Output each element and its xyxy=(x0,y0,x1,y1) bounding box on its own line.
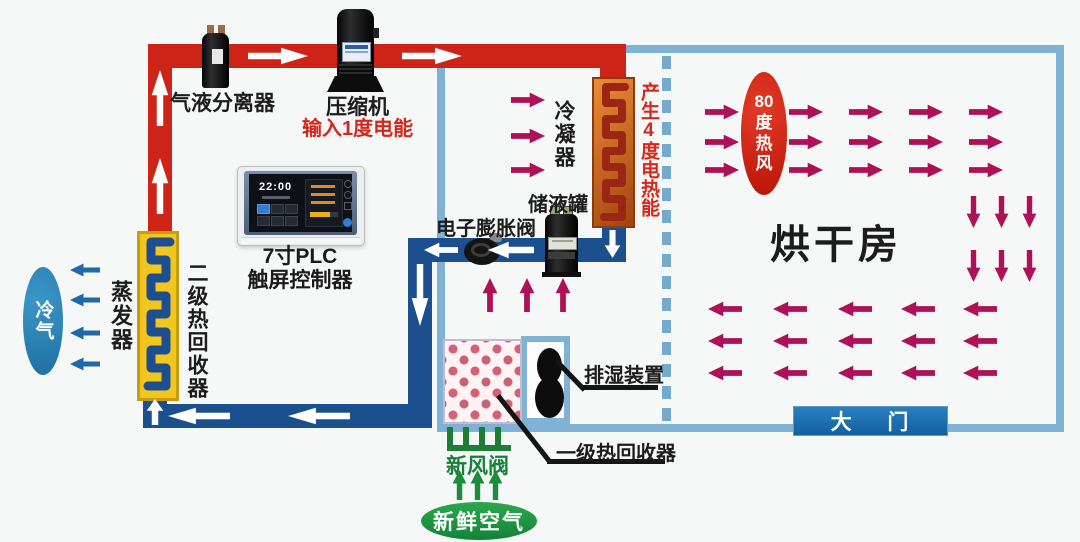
air-flow-arrow-left-icon xyxy=(963,301,997,317)
cold-air-badge: 冷气 xyxy=(23,267,63,375)
plc-screen-button[interactable] xyxy=(285,216,298,226)
plc-side-icon[interactable] xyxy=(344,191,352,199)
door-label: 大 门 xyxy=(831,406,911,436)
plc-screen-button[interactable] xyxy=(271,216,284,226)
air-flow-arrow-left-icon xyxy=(963,333,997,349)
plc-side-icon[interactable] xyxy=(344,180,352,188)
heat-recovery1-label: 一级热回收器 xyxy=(556,437,676,466)
dehumidifier-fan xyxy=(533,346,565,420)
plc-readout-panel xyxy=(305,179,343,227)
air-flow-arrow-right-icon xyxy=(789,104,823,120)
air-flow-arrow-right-icon xyxy=(909,104,943,120)
air-flow-arrow-left-icon xyxy=(901,333,935,349)
air-flow-arrow-left-icon xyxy=(838,333,872,349)
air-flow-arrow-left-icon xyxy=(838,365,872,381)
cold-air-arrow-left-icon xyxy=(70,293,100,307)
gas-liquid-separator xyxy=(200,24,234,90)
plc-screen[interactable]: 22:00 xyxy=(249,174,352,232)
tank-label: 储液罐 xyxy=(528,188,588,217)
hot-air-label: 80度热风 xyxy=(752,92,776,175)
air-flow-arrow-down-icon xyxy=(966,250,981,282)
compressor-power-note: 输入1度电能 xyxy=(302,112,413,141)
air-flow-arrow-left-icon xyxy=(901,301,935,317)
plc-screen-button[interactable] xyxy=(271,204,284,214)
air-flow-arrow-down-icon xyxy=(1022,196,1037,228)
plc-screen-button[interactable] xyxy=(257,216,270,226)
plc-screen-button[interactable] xyxy=(285,204,298,214)
plc-power-button[interactable] xyxy=(343,218,352,227)
door[interactable]: 大 门 xyxy=(793,406,948,436)
evaporator-label: 蒸发器 xyxy=(104,280,136,352)
coil-serpentine-icon xyxy=(140,234,176,398)
air-flow-arrow-right-icon xyxy=(789,162,823,178)
air-flow-arrow-up-icon xyxy=(482,278,498,312)
air-flow-arrow-down-icon xyxy=(966,196,981,228)
air-flow-arrow-right-icon xyxy=(909,162,943,178)
heat-pump-dryer-diagram: 22:00 xyxy=(0,0,1080,542)
air-flow-arrow-right-icon xyxy=(511,162,545,178)
fresh-air-valve xyxy=(447,427,511,451)
air-flow-arrow-left-icon xyxy=(838,301,872,317)
air-flow-arrow-right-icon xyxy=(969,162,1003,178)
air-flow-arrow-right-icon xyxy=(909,134,943,150)
air-flow-arrow-left-icon xyxy=(708,365,742,381)
air-flow-arrow-right-icon xyxy=(849,134,883,150)
compressor-port-icon xyxy=(373,28,379,38)
air-flow-arrow-left-icon xyxy=(708,301,742,317)
dehumidifier-label: 排湿装置 xyxy=(584,359,664,388)
air-flow-arrow-right-icon xyxy=(705,134,739,150)
air-flow-arrow-up-icon xyxy=(555,278,571,312)
air-flow-arrow-down-icon xyxy=(1022,250,1037,282)
condenser-heat-note: 产生4度电热能 xyxy=(635,82,662,217)
plc-side-icon[interactable] xyxy=(344,202,352,210)
compressor xyxy=(325,8,385,94)
plc-clock: 22:00 xyxy=(259,181,292,193)
air-flow-arrow-right-icon xyxy=(511,128,545,144)
heat-recovery2-label: 二级热回收器 xyxy=(181,262,211,400)
air-flow-arrow-left-icon xyxy=(708,333,742,349)
plc-screen-button[interactable] xyxy=(257,204,270,214)
separator-label-patch xyxy=(212,49,223,64)
tank-band xyxy=(548,237,577,250)
hot-air-badge: 80度热风 xyxy=(741,72,787,195)
drying-room-border-bottom xyxy=(437,424,1064,432)
air-flow-arrow-up-icon xyxy=(519,278,535,312)
condenser-label: 冷凝器 xyxy=(548,100,578,169)
air-flow-arrow-left-icon xyxy=(773,365,807,381)
cold-air-arrow-left-icon xyxy=(70,263,100,277)
compressor-label-sticker xyxy=(342,42,371,62)
air-flow-arrow-left-icon xyxy=(963,365,997,381)
air-flow-arrow-down-icon xyxy=(994,250,1009,282)
air-flow-arrow-right-icon xyxy=(789,134,823,150)
secondary-heat-recovery-coil xyxy=(137,231,179,401)
plc-label: 7寸PLC 触屏控制器 xyxy=(225,245,375,293)
cold-air-label: 冷气 xyxy=(30,300,57,342)
cold-air-arrow-left-icon xyxy=(70,326,100,340)
separator-label: 气液分离器 xyxy=(170,87,275,117)
plc-label-line2: 触屏控制器 xyxy=(225,269,375,293)
fresh-air-label: 新鲜空气 xyxy=(433,506,525,536)
plc-controller: 22:00 xyxy=(237,166,365,246)
plc-chin xyxy=(241,237,360,244)
air-flow-arrow-left-icon xyxy=(773,301,807,317)
fresh-air-badge: 新鲜空气 xyxy=(421,502,537,540)
valve-label: 电子膨胀阀 xyxy=(436,212,536,241)
condenser-coil xyxy=(592,77,635,228)
air-flow-arrow-right-icon xyxy=(969,134,1003,150)
air-flow-arrow-right-icon xyxy=(705,104,739,120)
plc-progress-bar xyxy=(310,212,338,217)
plc-clock-subtext xyxy=(262,196,290,199)
compressor-base xyxy=(327,76,384,92)
tank-feet xyxy=(542,272,581,277)
air-flow-arrow-left-icon xyxy=(901,365,935,381)
drying-room-border-right xyxy=(1056,45,1064,432)
hot-pipe-drop-to-condenser xyxy=(600,44,626,80)
air-flow-arrow-right-icon xyxy=(849,104,883,120)
air-flow-arrow-left-icon xyxy=(773,333,807,349)
drying-room-label: 烘干房 xyxy=(770,212,902,270)
air-flow-arrow-down-icon xyxy=(994,196,1009,228)
drying-room-border-top xyxy=(620,45,1064,53)
plc-label-line1: 7寸PLC xyxy=(225,245,375,269)
air-flow-arrow-right-icon xyxy=(511,92,545,108)
cold-air-arrow-left-icon xyxy=(70,357,100,371)
coil-serpentine-icon xyxy=(594,79,633,226)
air-flow-arrow-right-icon xyxy=(849,162,883,178)
air-flow-arrow-right-icon xyxy=(705,162,739,178)
air-flow-arrow-right-icon xyxy=(969,104,1003,120)
tank-band-lower xyxy=(548,252,575,259)
